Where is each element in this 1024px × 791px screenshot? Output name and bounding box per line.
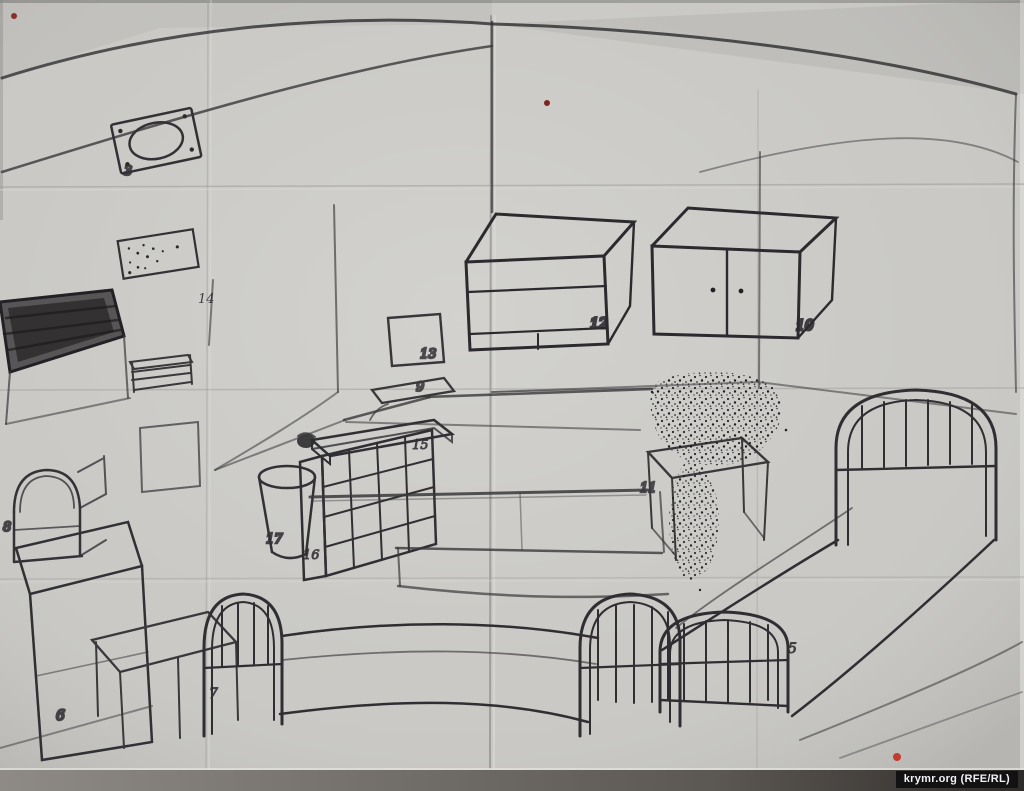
label-cabinet-open: 12 [590, 316, 608, 332]
label-pedestal: 6 [56, 708, 65, 724]
label-bed-right: 5 [788, 641, 797, 657]
label-stool: 11 [640, 481, 657, 496]
scan-bottom-band [0, 768, 1024, 791]
label-shelf-slab: 15 [412, 438, 429, 453]
label-bed-front: 7 [209, 686, 218, 702]
label-cabinet-doors: 10 [796, 318, 814, 334]
label-cubby-shelf: 16 [303, 548, 320, 563]
label-vent-plate: 14 [198, 292, 215, 307]
red-dot-center-top [544, 100, 550, 106]
red-dot-top-left [11, 13, 17, 19]
label-dome-box: 8 [3, 520, 11, 535]
label-small-wall-shelf: 9 [416, 380, 424, 395]
label-oval-plate: 3 [124, 164, 132, 179]
red-dot-bottom-right [893, 753, 901, 761]
label-bucket: 17 [266, 532, 283, 547]
source-watermark: krymr.org (RFE/RL) [896, 771, 1018, 788]
label-wall-square: 13 [420, 347, 437, 362]
sketch-canvas: 3 14 [0, 0, 1024, 791]
